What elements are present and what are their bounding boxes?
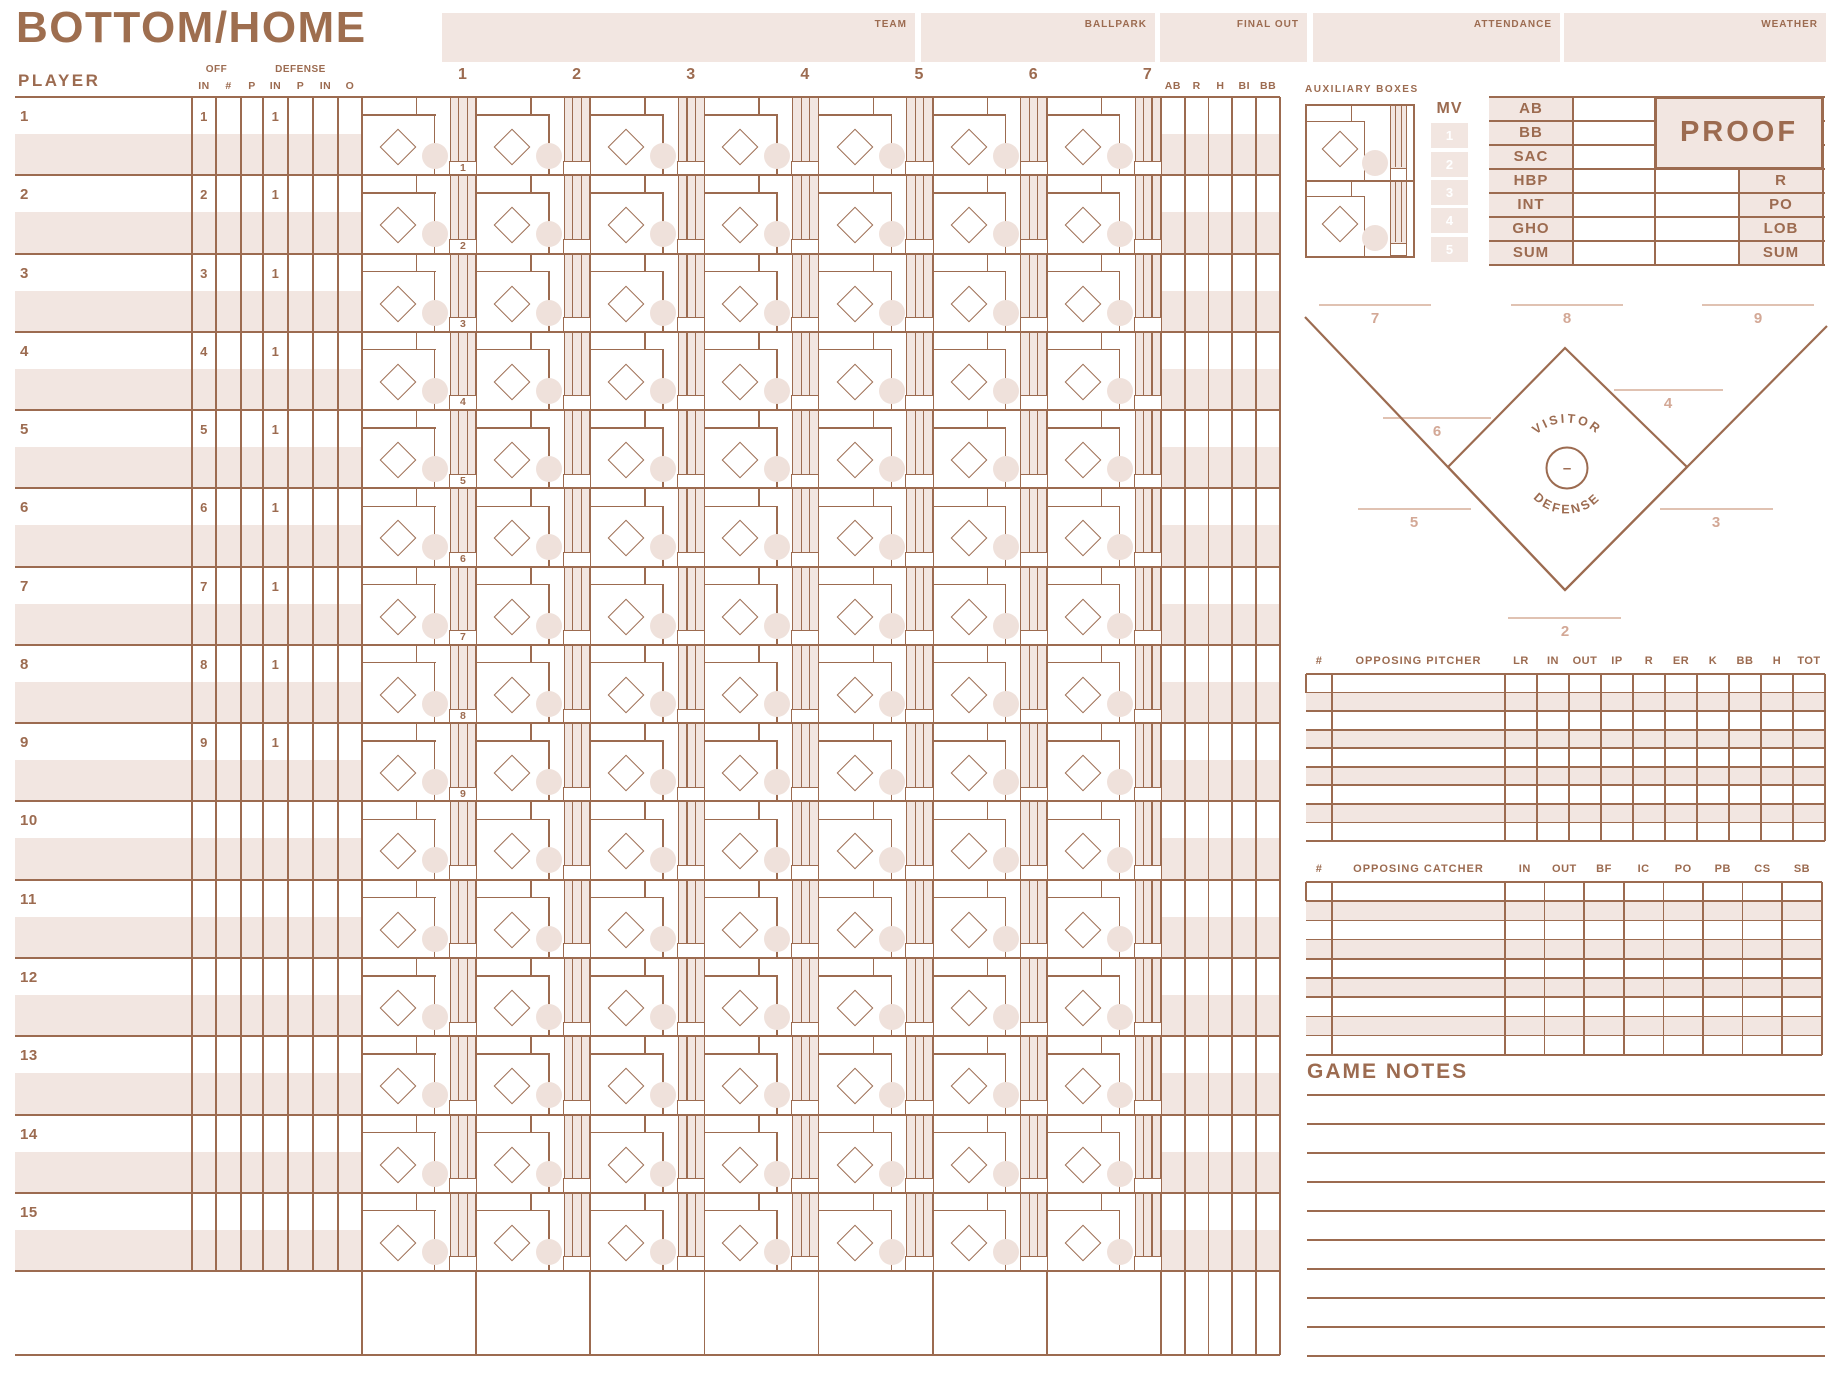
inning-end-box[interactable]: 7 <box>449 630 477 645</box>
scoring-cell[interactable] <box>704 1115 792 1193</box>
inning-end-box[interactable] <box>1020 395 1048 410</box>
catcher-table-row[interactable] <box>1306 1036 1822 1055</box>
scoring-cell[interactable] <box>933 332 1021 410</box>
scoring-cell[interactable] <box>1047 645 1135 723</box>
scoring-cell[interactable] <box>590 332 678 410</box>
inning-end-box[interactable] <box>1134 474 1162 489</box>
catcher-table-row[interactable] <box>1306 920 1822 939</box>
scoring-cell[interactable] <box>476 1036 564 1114</box>
scoring-cell[interactable] <box>933 410 1021 488</box>
scoring-cell[interactable] <box>704 254 792 332</box>
scoring-cell[interactable] <box>362 1036 450 1114</box>
inning-end-box[interactable] <box>1134 1022 1162 1037</box>
inning-end-box[interactable] <box>791 552 819 567</box>
scoring-cell[interactable] <box>476 1193 564 1271</box>
inning-end-box[interactable] <box>677 865 705 880</box>
inning-end-box[interactable] <box>563 787 591 802</box>
inning-end-box[interactable] <box>449 1100 477 1115</box>
inning-end-box[interactable] <box>677 1022 705 1037</box>
inning-end-box[interactable] <box>905 943 933 958</box>
scoring-cell[interactable] <box>1047 880 1135 958</box>
inning-end-box[interactable] <box>677 395 705 410</box>
scoring-cell[interactable] <box>1047 488 1135 566</box>
inning-end-box[interactable] <box>791 1022 819 1037</box>
scoring-cell[interactable] <box>819 332 907 410</box>
scoring-cell[interactable] <box>476 723 564 801</box>
inning-end-box[interactable] <box>1020 161 1048 176</box>
inning-end-box[interactable] <box>905 161 933 176</box>
scoring-cell[interactable] <box>590 880 678 958</box>
scoring-cell[interactable] <box>362 645 450 723</box>
inning-end-box[interactable] <box>563 865 591 880</box>
inning-end-box[interactable] <box>449 943 477 958</box>
pitch-count-strip[interactable] <box>678 97 704 1271</box>
scoring-cell[interactable] <box>362 175 450 253</box>
inning-end-box[interactable] <box>905 239 933 254</box>
inning-end-box[interactable] <box>905 1178 933 1193</box>
scoring-cell[interactable] <box>1047 1193 1135 1271</box>
scoring-cell[interactable] <box>590 1193 678 1271</box>
player-name-cell[interactable] <box>15 1193 362 1230</box>
inning-end-box[interactable] <box>563 1256 591 1271</box>
scoring-cell[interactable] <box>933 801 1021 879</box>
catcher-table-row[interactable] <box>1306 959 1822 978</box>
scoring-cell[interactable] <box>704 488 792 566</box>
inning-end-box[interactable] <box>1134 552 1162 567</box>
inning-end-box[interactable] <box>905 1022 933 1037</box>
scoring-cell[interactable] <box>933 723 1021 801</box>
proof-value-cell[interactable] <box>1655 241 1739 265</box>
scoring-cell[interactable] <box>933 254 1021 332</box>
scoring-cell[interactable] <box>476 880 564 958</box>
cell-line <box>933 271 1007 272</box>
inning-end-box[interactable]: 1 <box>449 161 477 176</box>
inning-end-box[interactable] <box>563 239 591 254</box>
inning-end-box[interactable] <box>1020 474 1048 489</box>
play-circle-icon <box>1107 769 1133 795</box>
inning-end-box[interactable]: 9 <box>449 787 477 802</box>
inning-end-box[interactable] <box>677 630 705 645</box>
proof-value-cell[interactable] <box>1573 97 1655 121</box>
proof-row-label-hbp: HBP <box>1489 172 1573 194</box>
note-line[interactable] <box>1307 1181 1825 1183</box>
scoring-cell[interactable] <box>1047 410 1135 488</box>
inning-end-box[interactable] <box>905 317 933 332</box>
mv-cell[interactable]: 1 <box>1431 123 1468 148</box>
inning-end-box[interactable] <box>1020 865 1048 880</box>
scoring-cell[interactable] <box>1047 958 1135 1036</box>
scoring-cell[interactable] <box>704 723 792 801</box>
inning-end-box[interactable] <box>791 1100 819 1115</box>
scoring-cell[interactable] <box>590 958 678 1036</box>
inning-end-box[interactable] <box>1020 317 1048 332</box>
inning-end-box[interactable] <box>905 865 933 880</box>
scoring-cell[interactable] <box>819 410 907 488</box>
scoring-cell[interactable] <box>704 645 792 723</box>
player-name-cell[interactable] <box>15 332 362 369</box>
inning-end-box[interactable] <box>1390 243 1407 257</box>
inning-end-box[interactable] <box>905 787 933 802</box>
inning-end-box[interactable] <box>1134 1256 1162 1271</box>
inning-end-box[interactable] <box>677 709 705 724</box>
scoring-cell[interactable] <box>704 410 792 488</box>
player-name-cell[interactable] <box>15 645 362 682</box>
scoring-cell[interactable] <box>819 254 907 332</box>
note-line[interactable] <box>1307 1355 1825 1357</box>
scoring-cell[interactable] <box>933 1115 1021 1193</box>
pitcher-table-name-header: OPPOSING PITCHER <box>1332 655 1505 671</box>
inning-end-box[interactable] <box>677 1178 705 1193</box>
note-line[interactable] <box>1307 1152 1825 1154</box>
scoring-cell[interactable] <box>476 567 564 645</box>
scoring-cell[interactable] <box>933 488 1021 566</box>
pitch-count-strip[interactable] <box>906 97 932 1271</box>
inning-end-box[interactable] <box>791 630 819 645</box>
inning-end-box[interactable] <box>791 161 819 176</box>
mv-cell[interactable]: 5 <box>1431 237 1468 262</box>
inning-end-box[interactable] <box>449 865 477 880</box>
scoring-cell[interactable] <box>362 801 450 879</box>
pitcher-table-row[interactable] <box>1306 730 1825 749</box>
player-name-cell[interactable] <box>15 97 362 134</box>
scoring-cell[interactable] <box>362 567 450 645</box>
inning-end-box[interactable] <box>1134 630 1162 645</box>
inning-end-box[interactable] <box>677 552 705 567</box>
pitcher-table-row[interactable] <box>1306 748 1825 767</box>
basepath-diamond-icon <box>1064 442 1101 479</box>
field-attendance[interactable]: ATTENDANCE <box>1313 13 1560 62</box>
catcher-table-row[interactable] <box>1306 978 1822 997</box>
player-name-cell[interactable] <box>15 488 362 525</box>
scoring-cell[interactable] <box>590 97 678 175</box>
proof-value-cell[interactable] <box>1573 169 1655 193</box>
inning-end-box[interactable] <box>563 943 591 958</box>
note-line[interactable] <box>1307 1239 1825 1241</box>
player-name-cell[interactable] <box>15 1115 362 1152</box>
proof-value-cell[interactable] <box>1573 193 1655 217</box>
scoring-cell[interactable] <box>362 332 450 410</box>
note-line[interactable] <box>1307 1326 1825 1328</box>
inning-end-box[interactable] <box>677 943 705 958</box>
inning-end-box[interactable] <box>905 395 933 410</box>
catcher-table-row[interactable] <box>1306 901 1822 920</box>
mv-cell[interactable]: 2 <box>1431 152 1468 177</box>
auxiliary-box[interactable] <box>1305 104 1415 258</box>
scoring-cell[interactable] <box>362 1193 450 1271</box>
scoring-cell[interactable] <box>476 175 564 253</box>
mv-cell[interactable]: 4 <box>1431 208 1468 233</box>
basepath-diamond-icon <box>722 755 759 792</box>
proof-value-cell[interactable] <box>1573 217 1655 241</box>
inning-end-box[interactable] <box>1134 943 1162 958</box>
catcher-table-row[interactable] <box>1306 882 1822 901</box>
proof-value-cell[interactable] <box>1573 241 1655 265</box>
scoring-cell[interactable] <box>1047 801 1135 879</box>
inning-end-box[interactable] <box>1020 630 1048 645</box>
note-line[interactable] <box>1307 1094 1825 1096</box>
player-name-cell[interactable] <box>15 410 362 447</box>
inning-end-box[interactable] <box>563 1100 591 1115</box>
proof-value-cell[interactable] <box>1573 145 1655 169</box>
inning-end-box[interactable]: 2 <box>449 239 477 254</box>
pitcher-table-row[interactable] <box>1306 674 1825 693</box>
scoring-cell[interactable] <box>590 567 678 645</box>
inning-end-box[interactable] <box>677 317 705 332</box>
auxiliary-boxes-label: AUXILIARY BOXES <box>1305 84 1419 95</box>
scoring-cell[interactable] <box>704 1193 792 1271</box>
inning-end-box[interactable] <box>1020 1100 1048 1115</box>
inning-end-box[interactable] <box>905 1256 933 1271</box>
scoring-cell[interactable] <box>590 488 678 566</box>
field-final-out[interactable]: FINAL OUT <box>1160 13 1307 62</box>
pitcher-table-row[interactable] <box>1306 804 1825 823</box>
pitcher-table-row[interactable] <box>1306 711 1825 730</box>
inning-end-box[interactable] <box>563 630 591 645</box>
scoring-cell[interactable] <box>819 645 907 723</box>
inning-end-box[interactable] <box>905 474 933 489</box>
field-label: ATTENDANCE <box>1474 19 1552 30</box>
scoring-cell[interactable] <box>819 1193 907 1271</box>
inning-end-box[interactable] <box>563 161 591 176</box>
player-name-cell[interactable] <box>15 958 362 995</box>
note-line[interactable] <box>1307 1268 1825 1270</box>
proof-right-label-po: PO <box>1739 196 1823 218</box>
inning-end-box[interactable] <box>1134 395 1162 410</box>
scoring-cell[interactable] <box>819 1036 907 1114</box>
scoring-cell[interactable] <box>476 958 564 1036</box>
scoring-cell[interactable] <box>819 801 907 879</box>
scoring-cell[interactable] <box>933 1193 1021 1271</box>
scoring-cell[interactable] <box>704 801 792 879</box>
player-name-cell[interactable] <box>15 567 362 604</box>
inning-end-box[interactable] <box>563 709 591 724</box>
pitcher-table-row[interactable] <box>1306 767 1825 786</box>
player-name-cell[interactable] <box>15 175 362 212</box>
scoring-cell[interactable] <box>1047 1036 1135 1114</box>
scoring-cell[interactable] <box>1047 567 1135 645</box>
inning-end-box[interactable] <box>1020 943 1048 958</box>
scoring-cell[interactable] <box>362 880 450 958</box>
inning-end-box[interactable] <box>677 474 705 489</box>
scoring-cell[interactable] <box>704 175 792 253</box>
scoring-cell[interactable] <box>1047 723 1135 801</box>
scoring-cell[interactable] <box>590 1115 678 1193</box>
scoring-cell[interactable] <box>933 567 1021 645</box>
pitch-count-strip[interactable] <box>564 97 590 1271</box>
inning-end-box[interactable] <box>1134 865 1162 880</box>
inning-end-box[interactable]: 6 <box>449 552 477 567</box>
inning-end-box[interactable] <box>1134 709 1162 724</box>
inning-end-box[interactable] <box>449 1256 477 1271</box>
pitcher-table-row[interactable] <box>1306 785 1825 804</box>
cell-line <box>933 1132 1007 1133</box>
note-line[interactable] <box>1307 1123 1825 1125</box>
scoring-cell[interactable] <box>476 332 564 410</box>
inning-end-box[interactable] <box>563 395 591 410</box>
scoring-cell[interactable] <box>819 175 907 253</box>
scoring-cell[interactable] <box>362 958 450 1036</box>
scoring-cell[interactable] <box>1047 1115 1135 1193</box>
inning-end-box[interactable] <box>563 1022 591 1037</box>
pitcher-table-row[interactable] <box>1306 822 1825 841</box>
scoring-cell[interactable] <box>704 97 792 175</box>
inning-end-box[interactable] <box>791 239 819 254</box>
inning-end-box[interactable] <box>1020 1022 1048 1037</box>
inning-end-box[interactable] <box>905 1100 933 1115</box>
scoring-cell[interactable] <box>933 1036 1021 1114</box>
scoring-cell[interactable] <box>476 410 564 488</box>
scoring-cell[interactable] <box>819 567 907 645</box>
scoring-cell[interactable] <box>362 410 450 488</box>
scoring-cell[interactable] <box>590 175 678 253</box>
scoring-cell[interactable] <box>704 958 792 1036</box>
inning-end-box[interactable] <box>1134 1100 1162 1115</box>
inning-end-box[interactable] <box>905 709 933 724</box>
inning-end-box[interactable]: 4 <box>449 395 477 410</box>
inning-end-box[interactable] <box>1134 239 1162 254</box>
scoring-cell[interactable] <box>933 880 1021 958</box>
note-line[interactable] <box>1307 1210 1825 1212</box>
scoring-cell[interactable] <box>476 254 564 332</box>
inning-end-box[interactable] <box>791 395 819 410</box>
scoring-cell[interactable] <box>819 880 907 958</box>
scoring-cell[interactable] <box>362 254 450 332</box>
scoring-cell[interactable] <box>1047 254 1135 332</box>
scoring-cell[interactable] <box>819 723 907 801</box>
scoring-cell[interactable] <box>704 1036 792 1114</box>
proof-value-cell[interactable] <box>1655 169 1739 193</box>
cell-line <box>476 897 550 898</box>
player-name-cell[interactable] <box>15 723 362 760</box>
scoring-cell[interactable] <box>1047 332 1135 410</box>
scoring-cell[interactable] <box>590 801 678 879</box>
scoring-cell[interactable] <box>819 958 907 1036</box>
scoring-cell[interactable] <box>933 958 1021 1036</box>
inning-end-box[interactable] <box>1020 787 1048 802</box>
mv-cell[interactable]: 3 <box>1431 180 1468 205</box>
inning-end-box[interactable] <box>677 1100 705 1115</box>
catcher-table-row[interactable] <box>1306 940 1822 959</box>
scoring-cell[interactable] <box>590 410 678 488</box>
inning-end-box[interactable] <box>1020 1256 1048 1271</box>
scoring-cell[interactable] <box>933 645 1021 723</box>
scoring-cell[interactable] <box>362 488 450 566</box>
inning-end-box[interactable] <box>1134 787 1162 802</box>
player-row-shade <box>15 134 362 175</box>
scoring-cell[interactable] <box>590 1036 678 1114</box>
proof-value-cell[interactable] <box>1573 121 1655 145</box>
scoring-cell[interactable] <box>933 97 1021 175</box>
inning-end-box[interactable] <box>791 709 819 724</box>
scoring-cell[interactable] <box>704 880 792 958</box>
scoring-cell[interactable] <box>590 254 678 332</box>
scoring-cell[interactable] <box>704 567 792 645</box>
player-name-cell[interactable] <box>15 1036 362 1073</box>
player-name-cell[interactable] <box>15 880 362 917</box>
inning-end-box[interactable] <box>791 943 819 958</box>
scoring-cell[interactable] <box>819 1115 907 1193</box>
inning-end-box[interactable] <box>677 239 705 254</box>
grid-line <box>1504 882 1506 1055</box>
field-weather[interactable]: WEATHER <box>1564 13 1826 62</box>
inning-end-box[interactable] <box>791 1178 819 1193</box>
field-team[interactable]: TEAM <box>442 13 915 62</box>
scoring-cell[interactable] <box>476 488 564 566</box>
scoring-cell[interactable] <box>590 645 678 723</box>
scoring-cell[interactable] <box>362 1115 450 1193</box>
scoring-cell[interactable] <box>362 723 450 801</box>
catcher-table-row[interactable] <box>1306 1016 1822 1035</box>
note-line[interactable] <box>1307 1297 1825 1299</box>
scoring-cell[interactable] <box>704 332 792 410</box>
field-ballpark[interactable]: BALLPARK <box>921 13 1155 62</box>
inning-end-box[interactable] <box>677 787 705 802</box>
pitch-count-strip[interactable] <box>450 97 476 1271</box>
inning-end-box[interactable] <box>1134 317 1162 332</box>
inning-end-box[interactable] <box>677 1256 705 1271</box>
inning-end-box[interactable] <box>1134 1178 1162 1193</box>
inning-end-box[interactable] <box>791 317 819 332</box>
inning-end-box[interactable] <box>449 1178 477 1193</box>
player-name-cell[interactable] <box>15 801 362 838</box>
scoring-cell[interactable] <box>476 645 564 723</box>
inning-end-box[interactable] <box>563 317 591 332</box>
inning-end-box[interactable] <box>905 630 933 645</box>
catcher-table-row[interactable] <box>1306 997 1822 1016</box>
inning-end-box[interactable]: 3 <box>449 317 477 332</box>
scoring-cell[interactable] <box>1047 175 1135 253</box>
inning-end-box[interactable] <box>563 552 591 567</box>
player-name-cell[interactable] <box>15 254 362 291</box>
inning-end-box[interactable] <box>449 1022 477 1037</box>
inning-end-box[interactable] <box>791 1256 819 1271</box>
pitch-count-strip[interactable] <box>1135 97 1161 1271</box>
inning-end-box[interactable] <box>563 474 591 489</box>
inning-end-box[interactable] <box>677 161 705 176</box>
position-2-number: 2 <box>1561 623 1569 640</box>
scoring-cell[interactable] <box>1047 97 1135 175</box>
proof-value-cell[interactable] <box>1655 217 1739 241</box>
basepath-diamond-icon <box>1064 911 1101 948</box>
proof-value-cell[interactable] <box>1655 193 1739 217</box>
pitcher-table-row[interactable] <box>1306 693 1825 712</box>
pitch-count-strip[interactable] <box>1020 97 1046 1271</box>
scoring-cell[interactable] <box>362 97 450 175</box>
inning-end-box[interactable] <box>1020 552 1048 567</box>
inning-end-box[interactable] <box>1020 239 1048 254</box>
inning-end-box[interactable] <box>1020 1178 1048 1193</box>
scoring-cell[interactable] <box>933 175 1021 253</box>
pitch-count-strip[interactable] <box>792 97 818 1271</box>
scoring-cell[interactable] <box>476 97 564 175</box>
inning-end-box[interactable]: 5 <box>449 474 477 489</box>
inning-end-box[interactable] <box>1020 709 1048 724</box>
scoring-cell[interactable] <box>819 97 907 175</box>
grid-line <box>1037 97 1038 1271</box>
inning-end-box[interactable] <box>1390 168 1407 182</box>
inning-end-box[interactable] <box>563 1178 591 1193</box>
inning-end-box[interactable] <box>791 865 819 880</box>
inning-end-box[interactable] <box>905 552 933 567</box>
scoring-cell[interactable] <box>476 801 564 879</box>
scoring-cell[interactable] <box>590 723 678 801</box>
inning-end-box[interactable] <box>791 474 819 489</box>
inning-end-box[interactable]: 8 <box>449 709 477 724</box>
inning-end-box[interactable] <box>791 787 819 802</box>
scoring-cell[interactable] <box>819 488 907 566</box>
scoring-cell[interactable] <box>476 1115 564 1193</box>
inning-end-box[interactable] <box>1134 161 1162 176</box>
